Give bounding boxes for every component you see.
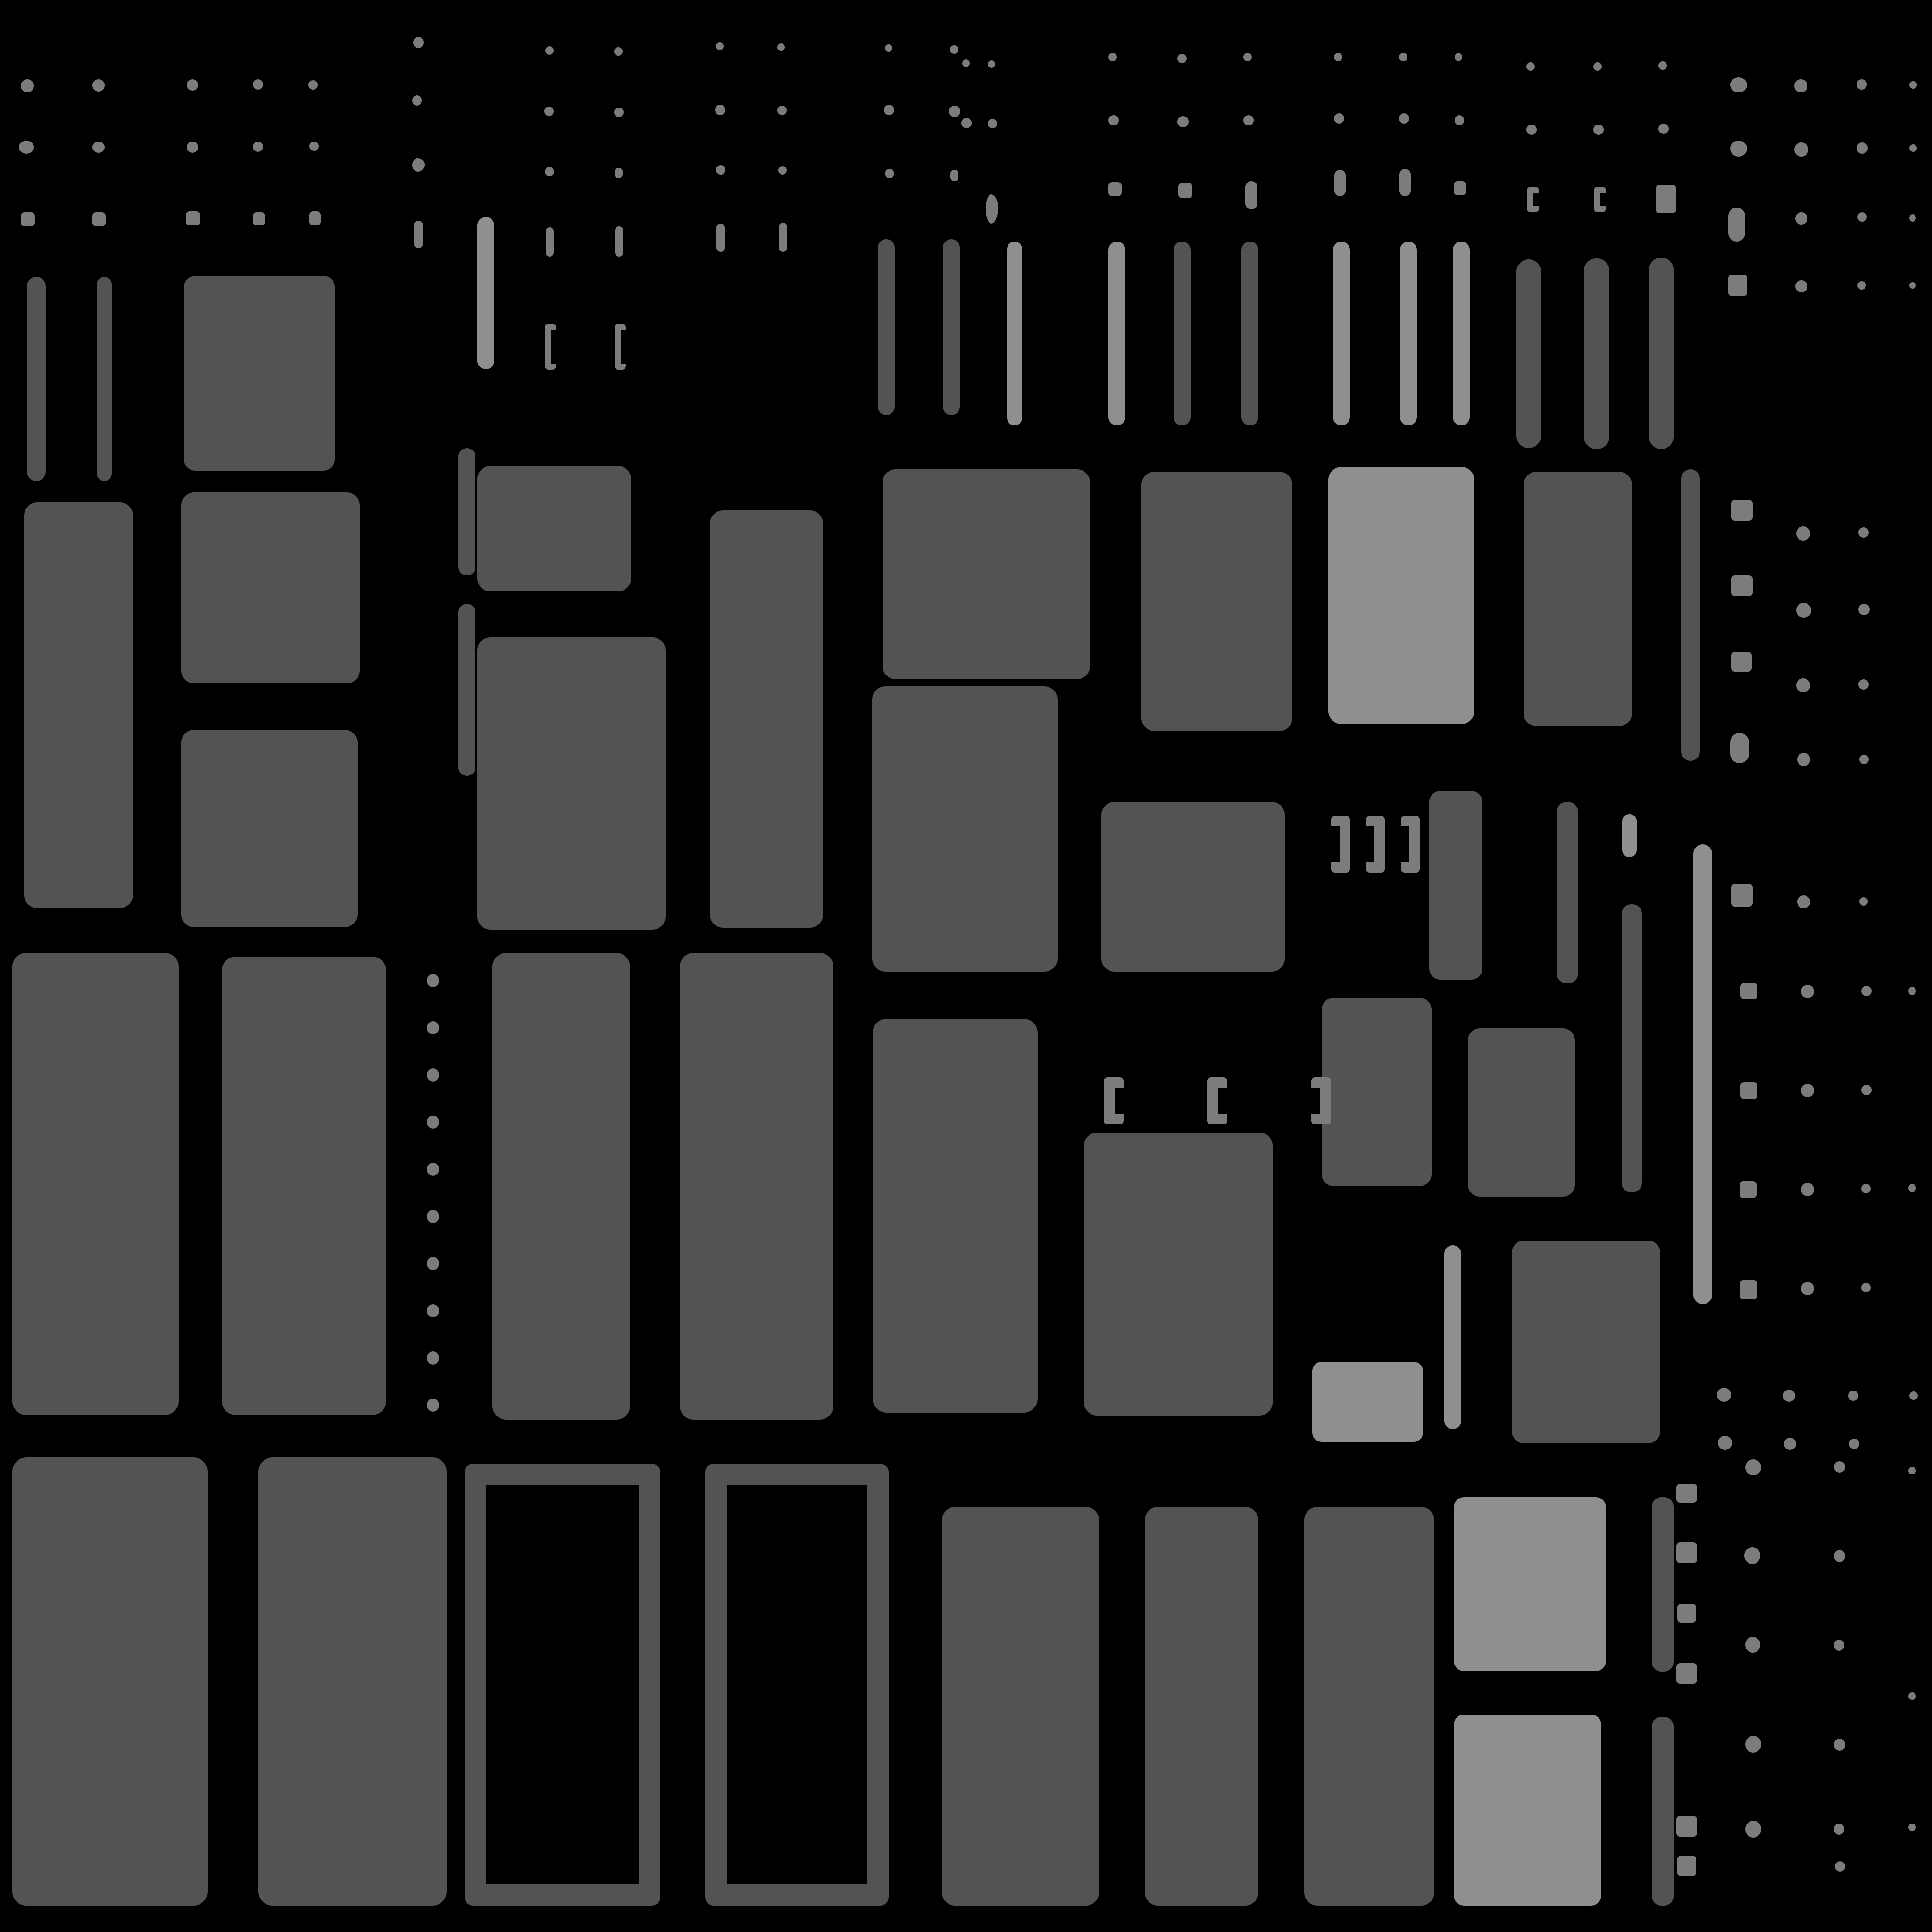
dot	[716, 165, 725, 175]
card-rect	[1304, 1507, 1434, 1906]
dot	[427, 1163, 439, 1176]
dot	[1834, 1550, 1845, 1562]
square-dot	[21, 212, 35, 226]
bracket-mark	[545, 324, 556, 370]
card-rect	[184, 276, 335, 471]
card-rect	[872, 686, 1058, 972]
dot	[949, 106, 960, 117]
dot	[1909, 81, 1917, 89]
dot	[1745, 1736, 1761, 1753]
dot	[1834, 1461, 1845, 1473]
dot	[1243, 115, 1254, 125]
square-dot	[1676, 1542, 1697, 1563]
card-rect	[883, 469, 1090, 679]
pill-dot	[414, 221, 423, 248]
vertical-bar	[27, 277, 46, 481]
dot	[1455, 53, 1462, 61]
square-dot	[1740, 1280, 1757, 1299]
dot	[1658, 61, 1667, 70]
dot	[412, 95, 422, 106]
dot	[1861, 1085, 1872, 1095]
dot	[1796, 678, 1810, 692]
dot	[950, 45, 958, 54]
card-rect	[1328, 467, 1474, 724]
dot	[1658, 124, 1669, 134]
square-dot	[885, 169, 894, 178]
pill-dot	[1730, 733, 1749, 763]
card-rect	[1145, 1507, 1258, 1906]
dot	[1718, 1436, 1732, 1450]
bracket-mark	[1401, 816, 1420, 873]
vertical-bar	[1400, 241, 1417, 425]
dot	[885, 44, 892, 52]
dot	[1857, 212, 1867, 222]
frame-rect	[705, 1464, 889, 1906]
dot	[716, 42, 724, 50]
dot	[1334, 113, 1344, 124]
dot	[1909, 282, 1916, 289]
dot	[1835, 1861, 1845, 1872]
pill-dot	[1245, 181, 1257, 209]
card-rect	[181, 730, 358, 927]
dot	[988, 119, 997, 128]
square-dot	[1677, 1856, 1696, 1876]
card-rect	[1084, 1133, 1273, 1416]
vertical-bar	[878, 239, 895, 415]
dot	[1801, 1183, 1814, 1196]
square-dot	[1108, 182, 1122, 196]
dot	[427, 1304, 439, 1317]
dot	[1243, 53, 1252, 61]
dot	[1399, 113, 1409, 124]
dot	[1784, 1438, 1796, 1450]
vertical-bar	[1693, 844, 1712, 1304]
square-dot	[1731, 575, 1753, 596]
dot	[187, 142, 198, 153]
card-rect	[942, 1507, 1099, 1906]
square-dot	[615, 168, 623, 178]
card-rect	[1141, 472, 1292, 731]
square-dot	[1731, 652, 1752, 672]
abstract-canvas	[0, 0, 1932, 1932]
dot	[1861, 1184, 1871, 1193]
card-rect	[24, 502, 133, 908]
square-dot	[1677, 1604, 1696, 1623]
vertical-bar	[1007, 241, 1022, 425]
dot	[1857, 281, 1866, 290]
card-rect	[1454, 1497, 1606, 1671]
vertical-bar	[1652, 1717, 1674, 1906]
dot	[21, 79, 34, 92]
dot	[1797, 753, 1810, 766]
pill-dot	[546, 227, 554, 257]
dot	[253, 79, 263, 90]
card-rect	[477, 637, 666, 930]
dot	[614, 47, 623, 56]
card-rect	[680, 953, 833, 1420]
square-dot	[1728, 275, 1747, 296]
dot	[1861, 986, 1872, 996]
dot	[777, 106, 787, 115]
dot	[1526, 125, 1537, 135]
vertical-bar	[943, 239, 960, 415]
square-dot	[545, 167, 554, 176]
card-rect	[477, 466, 631, 591]
dot	[1909, 214, 1916, 222]
dot	[19, 141, 34, 154]
card-rect	[1468, 1028, 1575, 1197]
dot	[1834, 1824, 1844, 1835]
dot	[544, 107, 554, 116]
vertical-bar	[1174, 241, 1191, 425]
square-dot	[186, 211, 200, 225]
dot	[1796, 526, 1810, 541]
vertical-bar	[1652, 1497, 1674, 1672]
dot	[715, 105, 725, 115]
vertical-bar	[97, 277, 112, 481]
square-dot	[1676, 1663, 1697, 1684]
dot	[884, 105, 894, 115]
dot	[1526, 62, 1535, 71]
frame-rect	[465, 1464, 660, 1906]
dot	[308, 80, 318, 90]
vertical-bar	[1584, 258, 1609, 449]
dot	[1783, 1390, 1795, 1402]
dot	[253, 142, 263, 152]
vertical-bar	[1649, 258, 1674, 449]
dot	[1795, 280, 1807, 292]
dot	[1909, 144, 1917, 152]
dot	[309, 142, 319, 151]
vertical-bar	[1444, 1245, 1461, 1429]
card-rect	[1429, 791, 1482, 980]
vertical-bar	[1622, 904, 1642, 1192]
dot	[1908, 1184, 1916, 1192]
bracket-mark	[1366, 816, 1385, 873]
vertical-bar	[1241, 241, 1258, 425]
dot	[1908, 987, 1916, 995]
card-rect	[1312, 1362, 1423, 1442]
dot	[427, 1068, 439, 1082]
dot	[961, 118, 972, 128]
square-dot	[950, 170, 958, 181]
dot	[778, 166, 787, 175]
card-rect	[1454, 1715, 1601, 1906]
dot	[1861, 1283, 1871, 1292]
dot	[1859, 755, 1869, 764]
dot	[427, 1021, 439, 1034]
dot	[1834, 1640, 1844, 1651]
pill-dot	[1334, 170, 1346, 196]
dot	[427, 974, 439, 987]
dot	[777, 43, 785, 51]
dot	[427, 1257, 439, 1270]
dot	[1745, 1637, 1760, 1653]
dot	[1744, 1547, 1760, 1564]
dot	[1455, 115, 1464, 125]
bracket-mark	[1527, 187, 1539, 212]
vertical-bar	[1622, 814, 1637, 857]
card-rect	[1101, 802, 1285, 972]
dot	[187, 79, 198, 91]
dot	[1801, 1084, 1814, 1097]
dot	[1717, 1388, 1731, 1402]
square-dot	[309, 211, 321, 225]
card-rect	[1512, 1241, 1660, 1443]
dot	[1908, 1467, 1916, 1474]
bracket-mark	[1331, 816, 1350, 873]
dot	[1108, 53, 1117, 61]
dot	[1108, 115, 1119, 125]
dot	[1399, 53, 1407, 61]
dot	[1801, 985, 1814, 998]
vertical-bar	[1108, 241, 1125, 425]
dot	[1730, 77, 1747, 92]
square-dot	[1454, 181, 1466, 195]
dot	[1795, 212, 1807, 225]
vertical-bar	[477, 217, 494, 369]
pill-dot	[615, 226, 623, 257]
dot	[1794, 79, 1807, 92]
square-dot	[1731, 884, 1753, 907]
bracket-mark	[1207, 1077, 1227, 1124]
square-dot	[1656, 185, 1676, 213]
card-rect	[12, 953, 179, 1415]
square-dot	[1676, 1484, 1697, 1503]
dot	[1848, 1391, 1858, 1401]
card-rect	[710, 510, 823, 928]
dot	[1745, 1459, 1761, 1475]
dot	[1801, 1282, 1814, 1295]
dot	[988, 60, 995, 68]
pill-dot	[779, 223, 787, 252]
dot	[427, 1399, 439, 1412]
card-rect	[12, 1457, 208, 1906]
dot	[427, 1210, 439, 1223]
dot	[1857, 142, 1868, 154]
dot	[1796, 603, 1811, 618]
dot	[1797, 895, 1810, 908]
pill-dot	[1728, 208, 1745, 241]
vertical-bar	[1333, 241, 1350, 425]
dot	[427, 1116, 439, 1129]
dot	[413, 37, 424, 48]
bracket-mark	[1594, 187, 1606, 212]
dot	[1858, 527, 1869, 538]
blob-dot	[986, 194, 998, 224]
dot	[92, 142, 105, 153]
card-rect	[492, 953, 630, 1420]
bracket-mark	[615, 324, 626, 370]
dot	[1908, 1692, 1916, 1700]
card-rect	[1322, 998, 1432, 1186]
card-rect	[222, 957, 386, 1415]
vertical-bar	[1453, 241, 1470, 425]
dot	[1909, 1391, 1918, 1400]
pill-dot	[716, 224, 725, 252]
square-dot	[1740, 1082, 1757, 1099]
dot	[1177, 54, 1187, 63]
dot	[427, 1351, 439, 1365]
dot	[1858, 679, 1869, 690]
pill-dot	[1399, 169, 1411, 196]
dot	[1334, 53, 1342, 61]
vertical-bar	[1516, 259, 1541, 448]
dot	[1859, 897, 1868, 906]
dot	[1730, 141, 1747, 157]
dot	[1745, 1821, 1761, 1838]
dot	[1849, 1439, 1859, 1449]
card-rect	[1524, 472, 1632, 726]
dot	[1593, 125, 1604, 135]
dot	[92, 79, 105, 92]
dot	[1834, 1739, 1845, 1751]
dot	[1857, 79, 1867, 90]
square-dot	[1178, 183, 1192, 198]
card-rect	[181, 492, 360, 683]
bracket-mark	[1311, 1077, 1331, 1124]
vertical-bar	[1557, 802, 1578, 983]
dot	[962, 59, 970, 67]
square-dot	[92, 212, 106, 226]
dot	[614, 108, 624, 117]
vertical-bar	[458, 448, 475, 575]
dot	[545, 46, 554, 55]
dot	[1858, 604, 1870, 615]
vertical-bar	[1681, 469, 1700, 761]
dot	[1908, 1824, 1916, 1831]
bracket-mark	[1104, 1077, 1124, 1124]
blob-dot	[412, 158, 425, 172]
vertical-bar	[458, 604, 475, 776]
dot	[1794, 142, 1808, 157]
dot	[1593, 62, 1602, 71]
square-dot	[1740, 983, 1757, 999]
square-dot	[1731, 500, 1753, 521]
card-rect	[873, 1019, 1038, 1413]
square-dot	[1740, 1181, 1757, 1198]
card-rect	[258, 1457, 447, 1906]
dot	[1177, 116, 1189, 127]
square-dot	[1676, 1816, 1697, 1837]
square-dot	[253, 212, 265, 225]
